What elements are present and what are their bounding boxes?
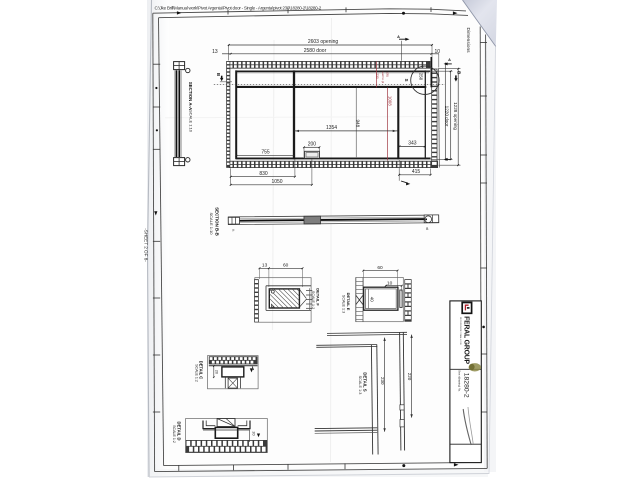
svg-text:220: 220 — [407, 373, 412, 381]
svg-text:SCALE 1:2: SCALE 1:2 — [194, 364, 198, 382]
svg-text:(05): (05) — [386, 72, 390, 77]
svg-text:wall to gl: wall to gl — [381, 71, 385, 83]
svg-text:-SHEET 2 OF 8-: -SHEET 2 OF 8- — [144, 228, 149, 262]
svg-text:S: S — [404, 79, 409, 82]
svg-text:1220 door: 1220 door — [445, 106, 450, 127]
svg-text:C:\Jke Brill\Manual work\Pivot: C:\Jke Brill\Manual work\Pivot Argenta\P… — [155, 5, 322, 10]
svg-text:40: 40 — [369, 297, 374, 302]
svg-text:DETAIL C: DETAIL C — [199, 361, 204, 380]
svg-text:1228 opening: 1228 opening — [453, 102, 458, 130]
svg-text:18280-2: 18280-2 — [463, 373, 470, 398]
svg-text:230: 230 — [375, 73, 379, 79]
svg-text:F: F — [232, 229, 234, 233]
svg-text:20: 20 — [215, 370, 219, 374]
svg-text:SCALE 1:10: SCALE 1:10 — [188, 110, 193, 133]
svg-text:Dimensions: Dimensions — [465, 27, 471, 53]
svg-text:2603 opening: 2603 opening — [308, 39, 339, 45]
svg-text:20: 20 — [251, 431, 255, 435]
svg-text:SCALE 1:10: SCALE 1:10 — [209, 212, 214, 235]
svg-text:FERAL GROUP: FERAL GROUP — [463, 316, 470, 364]
svg-text:13: 13 — [212, 49, 218, 55]
svg-text:1354: 1354 — [326, 125, 337, 131]
svg-text:1008: 1008 — [388, 96, 393, 106]
svg-text:SCALE 1:3: SCALE 1:3 — [341, 295, 345, 313]
svg-text:DETAIL E: DETAIL E — [346, 293, 351, 311]
svg-text:B: B — [457, 71, 462, 74]
svg-text:B: B — [216, 73, 221, 76]
svg-text:SCALE 1:2: SCALE 1:2 — [172, 425, 176, 443]
svg-text:RECUPERATIE STAAL LOOK: RECUPERATIE STAAL LOOK — [459, 317, 462, 346]
svg-text:1050: 1050 — [271, 179, 282, 185]
svg-text:Own r(drawing) No.: Own r(drawing) No. — [458, 370, 461, 392]
svg-text:60: 60 — [283, 263, 289, 269]
svg-text:DETAIL D: DETAIL D — [176, 422, 181, 441]
svg-text:2580 door: 2580 door — [304, 48, 327, 54]
svg-text:13: 13 — [262, 263, 268, 269]
svg-text:200: 200 — [308, 142, 317, 148]
svg-text:SCALE 1:2: SCALE 1:2 — [311, 291, 315, 309]
svg-text:SECTION A-A: SECTION A-A — [188, 82, 193, 111]
svg-text:755: 755 — [261, 149, 270, 155]
svg-text:415: 415 — [412, 169, 421, 175]
svg-text:948: 948 — [356, 119, 361, 127]
svg-text:60: 60 — [377, 265, 383, 271]
svg-text:SECTION B-B: SECTION B-B — [214, 207, 219, 236]
svg-text:830: 830 — [259, 171, 268, 177]
svg-text:A: A — [397, 35, 400, 39]
svg-text:343: 343 — [408, 141, 417, 147]
svg-text:A: A — [448, 58, 451, 62]
svg-text:230: 230 — [380, 377, 385, 385]
svg-text:250: 250 — [418, 73, 423, 81]
svg-text:SCALE 1:3: SCALE 1:3 — [358, 376, 362, 395]
